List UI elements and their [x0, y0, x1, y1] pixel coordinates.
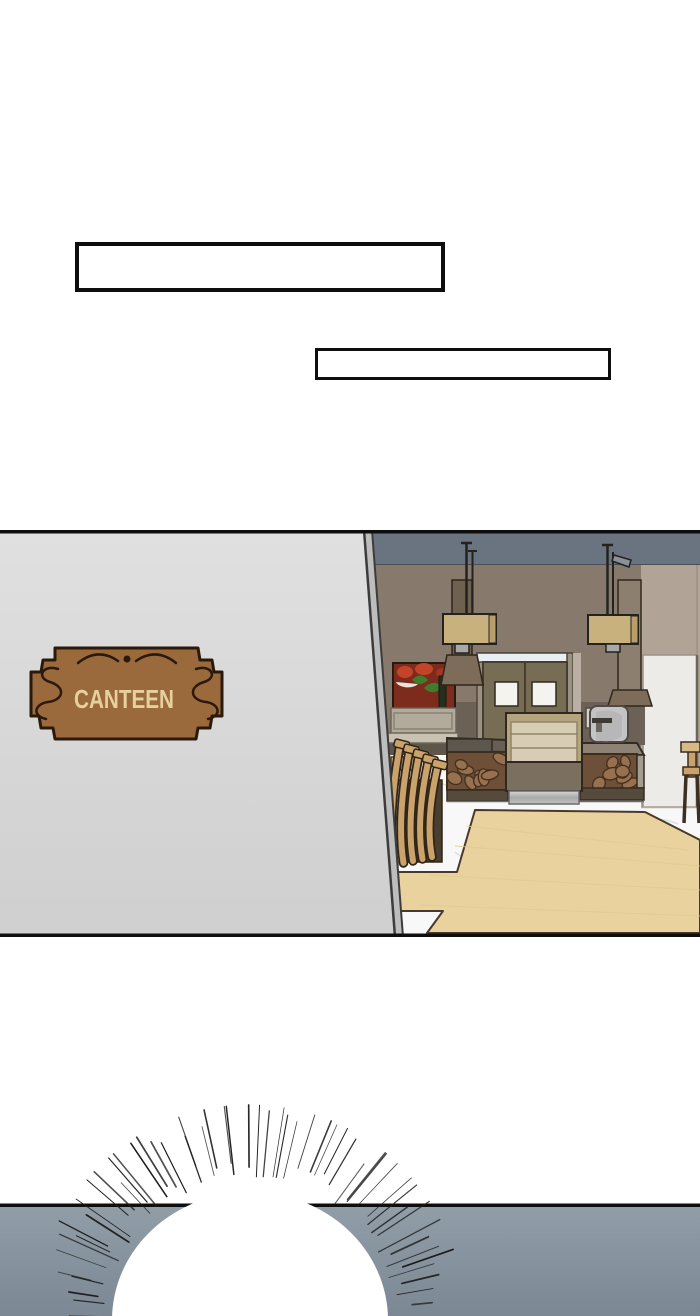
canteen-sign: CANTEEN	[31, 648, 222, 739]
coffee-machine	[586, 706, 628, 742]
narration-box-empty-2	[315, 348, 611, 380]
panel-bottom-border	[0, 934, 700, 938]
comic-page: CANTEEN	[0, 0, 700, 1316]
doorway-opening	[643, 655, 697, 807]
pillar-left-base	[441, 655, 483, 685]
canteen-sign-text: CANTEEN	[74, 684, 174, 714]
bottom-panel	[0, 1080, 700, 1316]
cafe-ceiling	[330, 532, 700, 566]
narration-box-empty-1	[75, 242, 445, 292]
sign-hook-dot	[124, 656, 131, 663]
canteen-panel: CANTEEN	[0, 530, 700, 937]
bottom-panel-top-border	[0, 1204, 700, 1208]
pastry-display-case	[506, 713, 582, 804]
pillar-right-base	[608, 690, 652, 706]
panel-top-border	[0, 530, 700, 534]
